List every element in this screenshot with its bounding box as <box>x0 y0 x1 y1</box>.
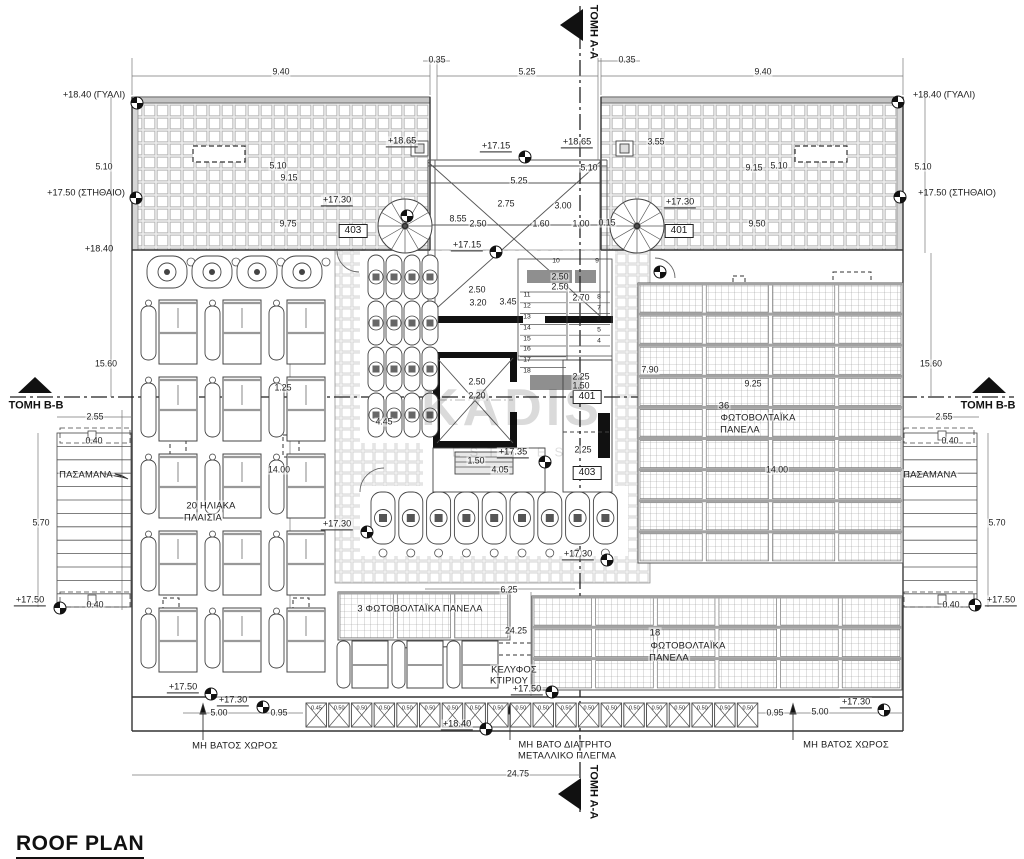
room-number-box: 403 <box>573 466 602 480</box>
level-marker-icon <box>361 526 373 538</box>
strip-dim-label: 0.50 <box>402 706 413 712</box>
step-number: 10 <box>552 259 560 266</box>
dim-label: 7.90 <box>640 366 659 375</box>
level-label: +17.30 <box>664 197 696 208</box>
dim-label: 1.00 <box>571 220 590 229</box>
strip-dim-label: 0.50 <box>334 706 345 712</box>
step-number: 5 <box>597 328 601 335</box>
dim-label: 24.25 <box>504 627 528 636</box>
dim-label: 0.35 <box>427 56 446 65</box>
level-marker-icon <box>969 599 981 611</box>
dim-label: 0.15 <box>597 219 616 228</box>
level-marker-icon <box>205 688 217 700</box>
level-label: +17.30 <box>217 695 249 706</box>
section-label: ΤΟΜΗ Β-Β <box>961 401 1016 412</box>
level-label: +18.40 <box>441 719 473 730</box>
area-label: ΜΗ ΒΑΤΟΣ ΧΩΡΟΣ <box>191 740 279 749</box>
step-number: 17 <box>523 358 531 365</box>
strip-dim-label: 0.50 <box>357 706 368 712</box>
area-label: ΠΛΑΙΣΙΑ <box>183 512 223 521</box>
strip-dim-label: 0.50 <box>697 706 708 712</box>
dim-label: 6.25 <box>499 586 518 595</box>
dim-label: 0.40 <box>940 437 959 446</box>
level-label: +18.65 <box>386 136 418 147</box>
dim-label: 3.45 <box>498 298 517 307</box>
dim-label: 2.25 <box>573 446 592 455</box>
strip-dim-label: 0.50 <box>674 706 685 712</box>
dim-label: 5.10 <box>913 163 932 172</box>
area-label: ΜΕΤΑΛΛΙΚΟ ΠΛΕΓΜΑ <box>517 750 617 759</box>
strip-dim-label: 0.50 <box>561 706 572 712</box>
dim-label: 5.10 <box>268 162 287 171</box>
level-label: +17.50 <box>511 684 543 695</box>
dim-label: 14.00 <box>765 466 789 475</box>
area-label: ΦΩΤΟΒΟΛΤΑΪΚΑ <box>719 412 796 421</box>
level-label: +18.40 (ΓΥΑΛΙ) <box>913 90 975 99</box>
strip-dim-label: 0.50 <box>515 706 526 712</box>
dim-label: 15.60 <box>919 360 943 369</box>
strip-dim-label: 0.50 <box>538 706 549 712</box>
dim-label: 9.40 <box>271 68 290 77</box>
area-label: 3 ΦΩΤΟΒΟΛΤΑΪΚΑ ΠΑΝΕΛΑ <box>356 603 483 612</box>
level-label: +18.40 <box>85 244 113 253</box>
dim-label: 2.20 <box>467 392 486 401</box>
dim-label: 5.10 <box>94 163 113 172</box>
level-label: +18.40 (ΓΥΑΛΙ) <box>63 90 125 99</box>
area-label: ΦΩΤΟΒΟΛΤΑΪΚΑ <box>649 640 726 649</box>
strip-dim-label: 0.50 <box>493 706 504 712</box>
section-label: ΤΟΜΗ Α-Α <box>588 5 599 59</box>
dim-label: 0.40 <box>941 601 960 610</box>
step-number: 8 <box>597 295 601 302</box>
area-label: ΜΗ ΒΑΤΟΣ ΧΩΡΟΣ <box>802 739 890 748</box>
roof-plan-drawing: ΤΟΜΗ Α-ΑΤΟΜΗ Α-ΑΤΟΜΗ Β-ΒΤΟΜΗ Β-Β0.350.35… <box>0 0 1024 859</box>
area-label: ΠΑΝΕΛΑ <box>648 652 690 661</box>
step-number: 9 <box>595 259 599 266</box>
strip-dim-label: 0.50 <box>584 706 595 712</box>
area-label: ΠΑΝΕΛΑ <box>719 424 761 433</box>
area-label: ΠΑΣΑΜΑΝΑ <box>902 469 958 478</box>
room-number-box: 401 <box>573 390 602 404</box>
dim-label: 2.50 <box>550 273 569 282</box>
level-label: +17.30 <box>321 195 353 206</box>
dim-label: 5.25 <box>517 68 536 77</box>
strip-dim-label: 0.50 <box>652 706 663 712</box>
strip-dim-label: 0.50 <box>447 706 458 712</box>
level-marker-icon <box>519 151 531 163</box>
dim-label: 2.70 <box>571 294 590 303</box>
dim-label: 4.05 <box>490 466 509 475</box>
dim-label: 5.00 <box>810 708 829 717</box>
strip-dim-label: 0.50 <box>742 706 753 712</box>
dim-label: 14.00 <box>267 466 291 475</box>
dim-label: 1.25 <box>273 384 292 393</box>
strip-dim-label: 0.45 <box>311 706 322 712</box>
dim-label: 15.60 <box>94 360 118 369</box>
dim-label: 1.60 <box>531 220 550 229</box>
dim-label: 3.00 <box>553 202 572 211</box>
section-label: ΤΟΜΗ Β-Β <box>9 401 64 412</box>
step-number: 12 <box>523 304 531 311</box>
strip-dim-label: 0.50 <box>425 706 436 712</box>
step-number: 14 <box>523 326 531 333</box>
dim-label: 9.15 <box>744 164 763 173</box>
strip-dim-label: 0.50 <box>470 706 481 712</box>
level-label: +18.65 <box>561 137 593 148</box>
level-marker-icon <box>546 686 558 698</box>
level-label: +17.30 <box>321 519 353 530</box>
dim-label: 2.50 <box>468 220 487 229</box>
dim-label: 9.50 <box>747 220 766 229</box>
dim-label: 2.50 <box>467 378 486 387</box>
area-label: 36 <box>718 400 731 409</box>
level-marker-icon <box>131 97 143 109</box>
level-label: +17.15 <box>480 141 512 152</box>
area-label: 20 ΗΛΙΑΚΑ <box>185 500 236 509</box>
dim-label: 2.50 <box>467 286 486 295</box>
level-label: +17.50 <box>14 595 46 606</box>
step-number: 13 <box>523 315 531 322</box>
dim-label: 5.10 <box>579 164 598 173</box>
dim-label: 2.55 <box>934 413 953 422</box>
dim-label: 5.25 <box>509 177 528 186</box>
dim-label: 24.75 <box>506 770 530 779</box>
dim-label: 5.70 <box>987 519 1006 528</box>
strip-dim-label: 0.50 <box>629 706 640 712</box>
level-marker-icon <box>654 266 666 278</box>
dim-label: 5.70 <box>31 519 50 528</box>
level-label: +17.50 <box>985 595 1017 606</box>
area-label: ΠΑΣΑΜΑΝΑ <box>58 469 114 478</box>
dim-label: 0.35 <box>617 56 636 65</box>
level-marker-icon <box>401 210 413 222</box>
level-marker-icon <box>894 191 906 203</box>
level-marker-icon <box>54 602 66 614</box>
step-number: 4 <box>597 339 601 346</box>
level-label: +17.15 <box>451 240 483 251</box>
step-number: 16 <box>523 347 531 354</box>
dim-label: 1.50 <box>571 382 590 391</box>
dim-label: 9.25 <box>743 380 762 389</box>
step-number: 15 <box>523 337 531 344</box>
level-label: +17.50 (ΣΤΗΘΑΙΟ) <box>918 188 996 197</box>
level-marker-icon <box>878 704 890 716</box>
dim-label: 3.55 <box>646 138 665 147</box>
level-label: +17.50 <box>167 682 199 693</box>
area-label: ΚΕΛΥΦΟΣ <box>490 664 538 673</box>
level-label: +17.30 <box>840 697 872 708</box>
dim-label: 0.95 <box>269 709 288 718</box>
dim-label: 0.95 <box>765 709 784 718</box>
section-label: ΤΟΜΗ Α-Α <box>588 765 599 819</box>
step-number: 18 <box>523 369 531 376</box>
dim-label: 9.75 <box>278 220 297 229</box>
area-label: 18 <box>649 627 662 636</box>
dim-label: 0.40 <box>84 437 103 446</box>
step-number: 7 <box>597 306 601 313</box>
dim-label: 9.40 <box>753 68 772 77</box>
level-marker-icon <box>892 96 904 108</box>
dim-label: 5.10 <box>769 162 788 171</box>
dim-label: 1.50 <box>466 457 485 466</box>
dim-label: 5.00 <box>209 709 228 718</box>
strip-dim-label: 0.50 <box>606 706 617 712</box>
drawing-title: ROOF PLAN <box>16 832 144 859</box>
dim-label: 2.50 <box>550 283 569 292</box>
dim-label: 0.40 <box>85 601 104 610</box>
dim-label: 8.55 <box>448 215 467 224</box>
step-number: 6 <box>597 317 601 324</box>
step-number: 11 <box>523 293 530 300</box>
dim-label: 2.75 <box>496 200 515 209</box>
level-label: +17.30 <box>562 549 594 560</box>
strip-dim-label: 0.50 <box>720 706 731 712</box>
dim-label: 9.15 <box>279 174 298 183</box>
room-number-box: 401 <box>665 224 694 238</box>
level-marker-icon <box>257 701 269 713</box>
dim-label: 4.45 <box>374 418 393 427</box>
strip-dim-label: 0.50 <box>379 706 390 712</box>
level-marker-icon <box>480 723 492 735</box>
level-marker-icon <box>601 554 613 566</box>
dim-label: 2.55 <box>85 413 104 422</box>
level-label: +17.50 (ΣΤΗΘΑΙΟ) <box>47 188 125 197</box>
level-marker-icon <box>490 246 502 258</box>
level-marker-icon <box>130 192 142 204</box>
level-label: +17.35 <box>497 447 529 458</box>
dim-label: 3.20 <box>468 299 487 308</box>
area-label: ΜΗ ΒΑΤΟ ΔΙΑΤΡΗΤΟ <box>517 739 612 748</box>
room-number-box: 403 <box>339 224 368 238</box>
